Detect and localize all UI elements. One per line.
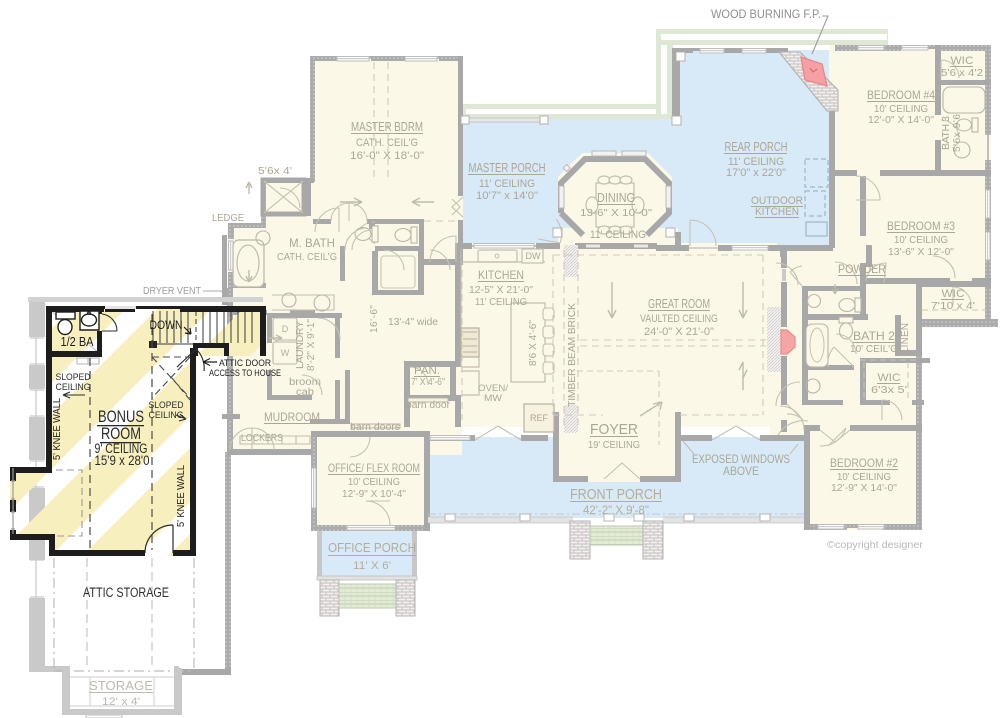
svg-text:15'9 x 28'0: 15'9 x 28'0 — [95, 453, 150, 468]
svg-text:10' CEILING: 10' CEILING — [894, 234, 948, 246]
svg-text:8'-2" X 9'-1": 8'-2" X 9'-1" — [306, 319, 317, 371]
svg-text:DINING: DINING — [597, 191, 635, 205]
svg-text:GREAT ROOM: GREAT ROOM — [648, 296, 710, 311]
svg-text:FRONT PORCH: FRONT PORCH — [570, 486, 662, 503]
svg-text:6'3x 5': 6'3x 5' — [871, 385, 907, 396]
svg-text:5'6x 9'6: 5'6x 9'6 — [952, 114, 963, 152]
svg-text:OFFICE/ FLEX ROOM: OFFICE/ FLEX ROOM — [328, 461, 420, 475]
svg-text:BEDROOM #3: BEDROOM #3 — [887, 219, 955, 233]
svg-text:CATH. CEIL'G: CATH. CEIL'G — [277, 251, 337, 263]
svg-text:5'6x 4': 5'6x 4' — [258, 166, 292, 177]
svg-text:12'-9" X 10'-4": 12'-9" X 10'-4" — [342, 488, 406, 500]
svg-text:16'-6": 16'-6" — [369, 305, 380, 333]
svg-text:10' CEIL'G: 10' CEIL'G — [850, 343, 898, 355]
svg-text:LINEN: LINEN — [900, 323, 911, 353]
svg-text:LAUNDRY: LAUNDRY — [294, 321, 306, 369]
svg-text:LOCKERS: LOCKERS — [241, 432, 283, 444]
svg-text:MASTER BDRM: MASTER BDRM — [351, 119, 423, 134]
svg-text:POWDER: POWDER — [838, 262, 886, 276]
svg-text:13-6" X 10'-0": 13-6" X 10'-0" — [580, 207, 652, 219]
svg-text:BEDROOM #2: BEDROOM #2 — [830, 456, 898, 470]
svg-text:TIMBER BEAM BRICK: TIMBER BEAM BRICK — [566, 303, 578, 407]
svg-text:19' CEILING: 19' CEILING — [588, 439, 640, 451]
svg-text:VAULTED CEILING: VAULTED CEILING — [640, 313, 718, 325]
svg-text:12'-9" X 14'-0": 12'-9" X 14'-0" — [831, 482, 897, 494]
svg-text:cab: cab — [296, 387, 314, 398]
svg-text:10' CEILING: 10' CEILING — [348, 476, 400, 488]
svg-text:17'0" x 22'0": 17'0" x 22'0" — [726, 167, 786, 179]
svg-text:REAR PORCH: REAR PORCH — [725, 140, 788, 154]
svg-text:5' KNEE WALL: 5' KNEE WALL — [175, 465, 187, 527]
svg-text:7'10 x 4': 7'10 x 4' — [931, 301, 975, 312]
svg-text:5' KNEE WALL: 5' KNEE WALL — [51, 398, 63, 460]
svg-text:WIC: WIC — [942, 288, 965, 300]
svg-text:DRYER VENT: DRYER VENT — [143, 285, 201, 297]
svg-text:PAN.: PAN. — [414, 365, 440, 377]
svg-text:WIC: WIC — [951, 55, 974, 67]
svg-text:STORAGE: STORAGE — [89, 678, 153, 693]
svg-text:MW: MW — [484, 393, 502, 404]
svg-text:12'-0" X 14'-0": 12'-0" X 14'-0" — [868, 114, 934, 126]
svg-text:BATH 2: BATH 2 — [853, 329, 895, 343]
svg-text:EXPOSED WINDOWS: EXPOSED WINDOWS — [692, 454, 790, 466]
svg-text:BONUS: BONUS — [98, 408, 144, 426]
svg-text:barn door: barn door — [406, 400, 451, 411]
svg-text:CEILING: CEILING — [56, 382, 91, 393]
svg-text:KITCHEN: KITCHEN — [755, 206, 799, 218]
svg-text:13'-4" wide: 13'-4" wide — [388, 317, 438, 328]
svg-text:12-5" X 21'-0": 12-5" X 21'-0" — [469, 284, 533, 296]
svg-text:M. BATH: M. BATH — [289, 236, 335, 250]
svg-text:REF: REF — [530, 413, 549, 423]
svg-text:CATH. CEIL'G: CATH. CEIL'G — [356, 137, 418, 149]
svg-text:OFFICE PORCH: OFFICE PORCH — [328, 540, 416, 555]
svg-text:12' x 4': 12' x 4' — [102, 696, 140, 708]
svg-text:5'6 x 4'2: 5'6 x 4'2 — [941, 68, 983, 79]
svg-text:7' X 4'-6": 7' X 4'-6" — [411, 377, 445, 388]
svg-text:DOWN: DOWN — [150, 320, 183, 332]
svg-text:1/2 BA: 1/2 BA — [61, 335, 95, 349]
svg-text:10'7" x 14'0": 10'7" x 14'0" — [476, 190, 538, 202]
svg-text:©copyright designer: ©copyright designer — [827, 540, 924, 551]
svg-text:ACCESS TO HOUSE: ACCESS TO HOUSE — [209, 368, 281, 379]
svg-text:barn doors: barn doors — [350, 422, 400, 433]
svg-text:BATH 3: BATH 3 — [940, 116, 952, 150]
svg-text:11' CEILING: 11' CEILING — [479, 178, 535, 190]
svg-text:ATTIC STORAGE: ATTIC STORAGE — [83, 585, 169, 600]
svg-text:42'-2" X 9'-8": 42'-2" X 9'-8" — [583, 503, 649, 517]
svg-text:KITCHEN: KITCHEN — [478, 268, 524, 282]
svg-text:ABOVE: ABOVE — [723, 466, 759, 478]
svg-text:WOOD BURNING F.P.: WOOD BURNING F.P. — [711, 9, 821, 21]
svg-text:11' CEILING: 11' CEILING — [475, 296, 527, 308]
svg-text:16'-0" X 18'-0": 16'-0" X 18'-0" — [350, 150, 424, 162]
svg-text:11' CEILING: 11' CEILING — [590, 229, 646, 241]
svg-text:MUDROOM: MUDROOM — [264, 410, 320, 424]
svg-text:13'-6" X 12'-0": 13'-6" X 12'-0" — [888, 246, 954, 258]
svg-text:D: D — [282, 324, 289, 334]
svg-text:FOYER: FOYER — [590, 421, 638, 438]
svg-text:W: W — [281, 348, 290, 358]
svg-text:WIC: WIC — [878, 372, 901, 384]
svg-text:24'-0" X 21'-0": 24'-0" X 21'-0" — [644, 326, 714, 338]
svg-text:8'6 X 4'-6": 8'6 X 4'-6" — [528, 320, 539, 366]
svg-text:LEDGE: LEDGE — [212, 213, 244, 224]
svg-text:11' X 6': 11' X 6' — [353, 560, 391, 572]
svg-text:MASTER PORCH: MASTER PORCH — [469, 161, 546, 175]
svg-text:BEDROOM #4: BEDROOM #4 — [867, 88, 935, 102]
svg-text:DW: DW — [526, 251, 541, 261]
